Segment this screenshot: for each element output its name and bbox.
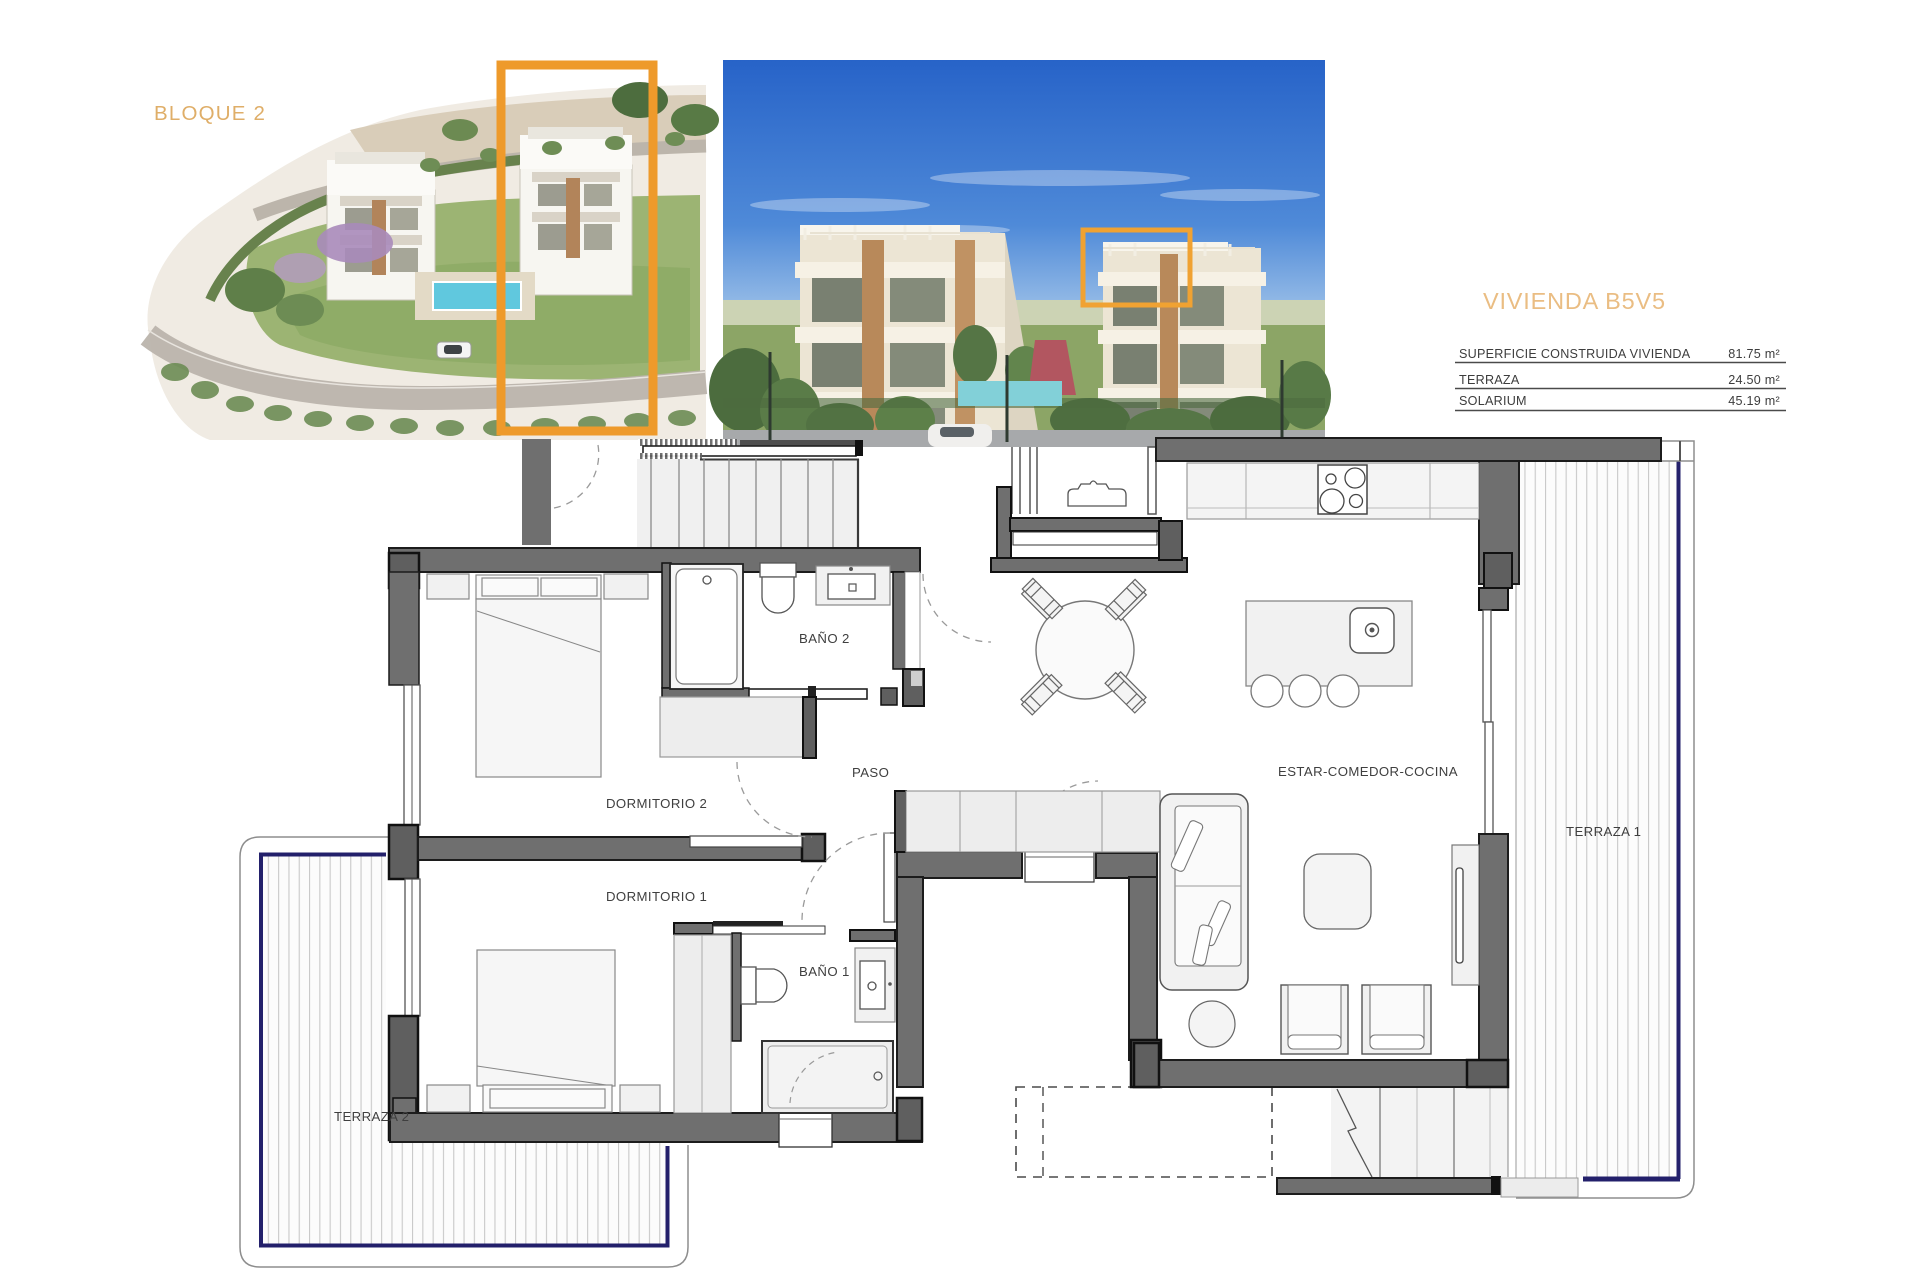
svg-text:BLOQUE 2: BLOQUE 2 [154, 102, 266, 125]
svg-text:DORMITORIO 1: DORMITORIO 1 [606, 889, 707, 904]
svg-text:TERRAZA 2: TERRAZA 2 [334, 1109, 409, 1124]
svg-text:45.19 m²: 45.19 m² [1728, 394, 1780, 408]
svg-text:PASO: PASO [852, 765, 889, 780]
svg-text:ESTAR-COMEDOR-COCINA: ESTAR-COMEDOR-COCINA [1278, 764, 1458, 779]
svg-text:SOLARIUM: SOLARIUM [1459, 394, 1527, 408]
svg-text:24.50 m²: 24.50 m² [1728, 373, 1780, 387]
svg-text:81.75 m²: 81.75 m² [1728, 347, 1780, 361]
svg-text:TERRAZA: TERRAZA [1459, 373, 1520, 387]
svg-text:BAÑO 2: BAÑO 2 [799, 631, 850, 646]
svg-text:VIVIENDA B5V5: VIVIENDA B5V5 [1483, 288, 1666, 314]
svg-text:SUPERFICIE CONSTRUIDA VIVIENDA: SUPERFICIE CONSTRUIDA VIVIENDA [1459, 347, 1691, 361]
svg-text:DORMITORIO 2: DORMITORIO 2 [606, 796, 707, 811]
svg-text:BAÑO 1: BAÑO 1 [799, 964, 850, 979]
svg-text:TERRAZA 1: TERRAZA 1 [1566, 824, 1641, 839]
